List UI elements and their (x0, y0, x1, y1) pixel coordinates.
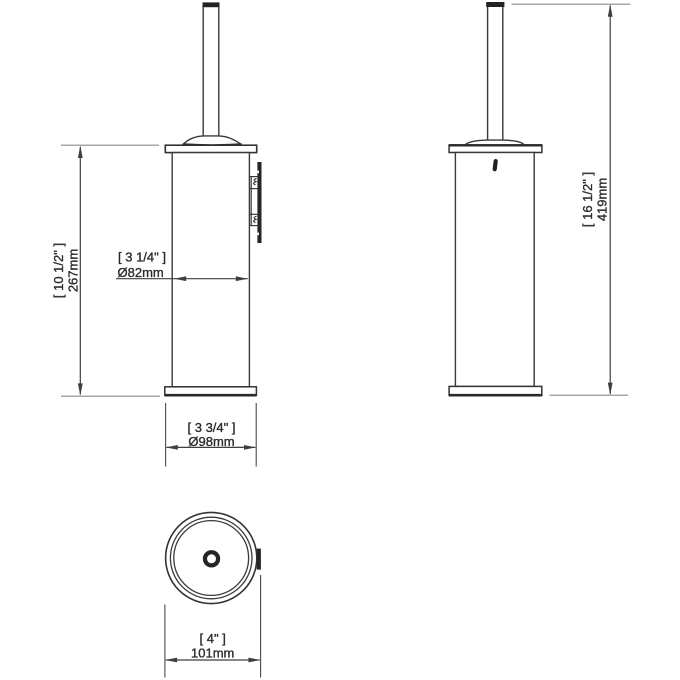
svg-text:267mm: 267mm (66, 249, 81, 292)
svg-text:Ø98mm: Ø98mm (188, 434, 234, 449)
svg-text:419mm: 419mm (595, 178, 610, 221)
svg-text:[ 4" ]: [ 4" ] (200, 631, 226, 646)
svg-text:[ 3 3/4" ]: [ 3 3/4" ] (188, 420, 236, 435)
svg-text:[ 10 1/2" ]: [ 10 1/2" ] (51, 243, 66, 298)
svg-text:101mm: 101mm (191, 645, 234, 660)
svg-text:Ø82mm: Ø82mm (118, 265, 164, 280)
svg-text:[ 3 1/4" ]: [ 3 1/4" ] (118, 250, 166, 265)
svg-text:[ 16 1/2" ]: [ 16 1/2" ] (580, 172, 595, 227)
